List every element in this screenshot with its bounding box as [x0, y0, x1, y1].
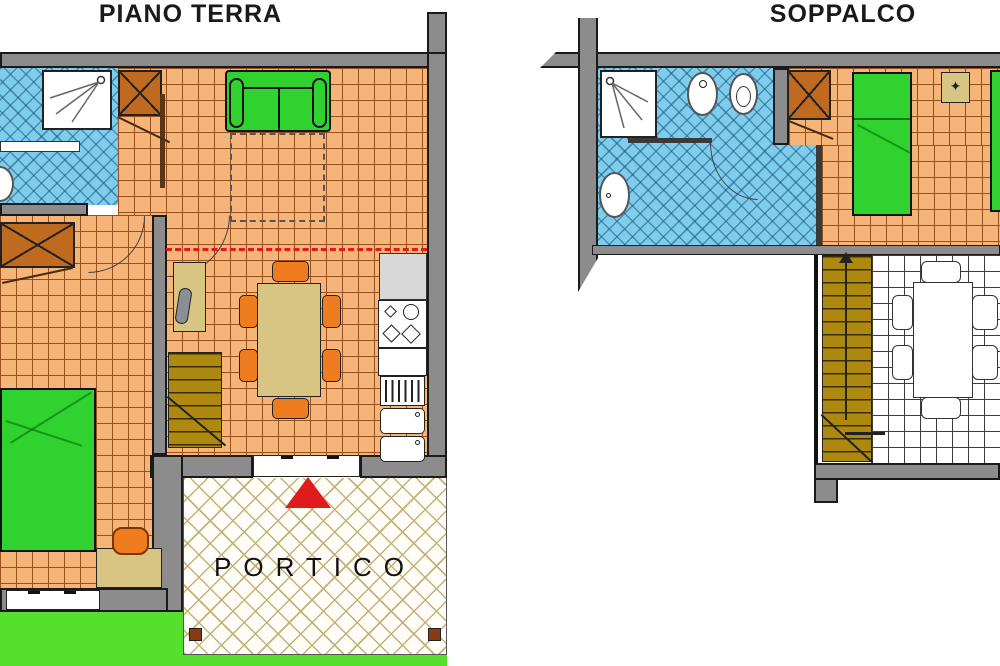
portico-pillar-left: [189, 628, 202, 641]
sp-ghost-chair-right-2: [972, 345, 998, 380]
pt-burner-2: [403, 304, 419, 320]
pt-entrance-arrow: [285, 477, 331, 508]
sp-bed-pillow-line: [854, 118, 910, 120]
sp-bidet-drain: [699, 80, 707, 88]
sp-sink-drain: [606, 193, 611, 198]
pt-bathroom-bottom-wall: [0, 203, 88, 216]
sp-single-bed: [852, 72, 912, 216]
sp-toilet: [729, 73, 758, 115]
pt-dish-drainer: [380, 376, 425, 406]
pt-shower-spray-icon: [44, 72, 109, 127]
soppalco-title: SOPPALCO: [763, 0, 923, 29]
sp-single-bed-2-cut: [990, 70, 1000, 212]
pt-window-tick-1: [28, 591, 40, 594]
pt-sofa-back-line: [244, 87, 312, 89]
pt-chair-left-1: [239, 295, 258, 328]
pt-mezzanine-projection-line: [166, 248, 427, 251]
pt-chair-right-2: [322, 349, 341, 382]
pt-sofa-arm-right: [312, 78, 327, 128]
portico-label: PORTICO: [184, 552, 446, 583]
sp-bidet: [687, 72, 718, 116]
pt-stove: [378, 300, 427, 348]
sp-bath-stub-wall: [628, 138, 712, 143]
pt-sofa: [225, 70, 331, 132]
sp-stairs-up-arrow: [839, 252, 853, 263]
sp-bottom-wall: [814, 463, 1000, 480]
piano-terra-title: PIANO TERRA: [88, 0, 293, 29]
grass-left: [0, 612, 185, 666]
pt-entrance-threshold: [253, 455, 360, 477]
floor-plan-canvas: PIANO TERRA PORTICO: [0, 0, 1000, 666]
sp-thin-wall: [816, 145, 822, 245]
pt-sofa-arm-left: [229, 78, 244, 128]
sp-stairs: [822, 255, 872, 462]
pt-chair-top: [272, 261, 309, 282]
pt-faucet-1: [415, 412, 420, 417]
pt-right-wall-stub: [427, 12, 447, 56]
sp-ghost-chair-top: [921, 261, 961, 283]
pt-bedroom-wardrobe: [0, 222, 75, 268]
pt-window-tick-2: [64, 591, 76, 594]
sp-stairs-bottom-tick: [845, 432, 885, 435]
sp-ghost-chair-right-1: [972, 295, 998, 330]
sp-toilet-bowl: [736, 86, 751, 107]
portico-pillar-right: [428, 628, 441, 641]
pt-bath-shelf: [0, 141, 80, 152]
sp-stairs-center-line: [845, 262, 847, 420]
sp-ghost-table: [913, 282, 973, 398]
pt-hall-wardrobe: [118, 70, 162, 116]
sp-flower-table: ✦: [941, 72, 970, 103]
pt-window: [6, 590, 100, 610]
pt-lamp: [112, 527, 149, 555]
pt-fridge: [379, 253, 427, 300]
pt-chair-right-1: [322, 295, 341, 328]
sp-ghost-chair-left-1: [892, 295, 913, 330]
pt-dining-table: [257, 283, 321, 397]
pt-threshold-tick-2: [327, 456, 339, 459]
pt-top-wall: [0, 52, 447, 68]
pt-kitchen-counter: [378, 348, 427, 376]
sp-wardrobe: [787, 70, 831, 120]
pt-rug-outline: [230, 133, 325, 222]
sp-sink: [599, 172, 630, 218]
sp-shower: [600, 70, 657, 138]
grass-bottom: [183, 655, 447, 666]
pt-dish-drainer-slats: [385, 380, 421, 402]
sp-ghost-chair-left-2: [892, 345, 913, 380]
sp-ghost-chair-bottom: [921, 397, 961, 419]
pt-inner-wall: [152, 215, 167, 455]
pt-double-bed: [0, 388, 96, 552]
sp-bottom-wall-foot: [814, 478, 838, 503]
sp-bedroom-bottom-wall: [592, 245, 1000, 255]
pt-chair-bottom: [272, 398, 309, 419]
flower-icon: ✦: [942, 78, 969, 95]
pt-shower: [42, 70, 112, 130]
pt-faucet-2: [415, 440, 420, 445]
pt-sofa-seat-seam: [278, 88, 280, 130]
sp-top-wall: [540, 52, 1000, 68]
pt-right-wall: [427, 52, 447, 478]
sp-shower-spray-icon: [602, 72, 654, 135]
pt-threshold-tick-1: [281, 456, 293, 459]
pt-chair-left-2: [239, 349, 258, 382]
